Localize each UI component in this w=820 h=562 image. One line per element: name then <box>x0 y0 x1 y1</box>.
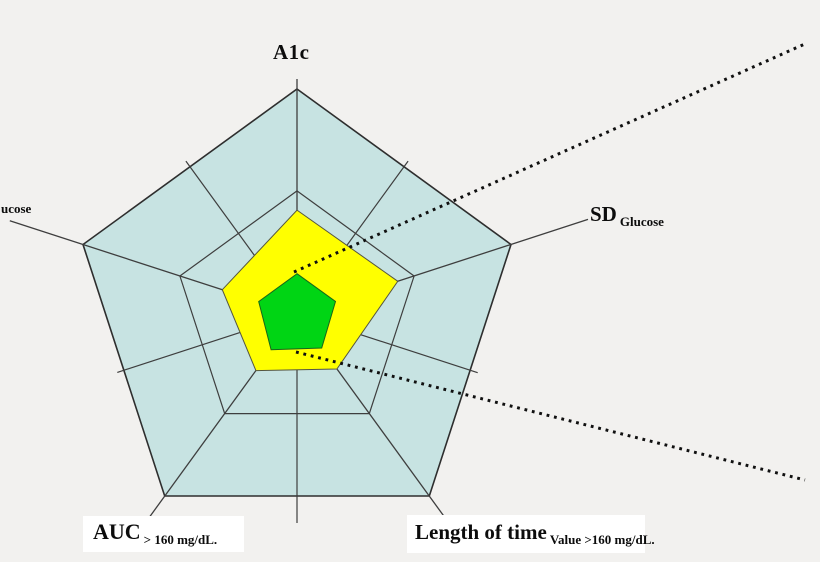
sd-subscript-text: Glucose <box>620 214 664 229</box>
axis-label-left-clipped: ucose <box>1 202 31 215</box>
length-subscript-text: Value >160 mg/dL. <box>550 532 655 547</box>
radar-chart-svg <box>0 0 820 562</box>
auc-main-text: AUC <box>93 519 141 544</box>
auc-subscript-text: > 160 mg/dL. <box>144 532 218 547</box>
axis-label-length-of-time-box: Length of timeValue >160 mg/dL. <box>407 515 645 553</box>
length-main-text: Length of time <box>415 520 547 544</box>
axis-label-auc-box: AUC> 160 mg/dL. <box>83 516 244 552</box>
axis-label-a1c: A1c <box>273 42 310 63</box>
sd-main-text: SD <box>590 202 617 226</box>
radar-figure: A1c SDGlucose ucose AUC> 160 mg/dL. Leng… <box>0 0 820 562</box>
axis-label-sd-glucose: SDGlucose <box>590 204 664 225</box>
